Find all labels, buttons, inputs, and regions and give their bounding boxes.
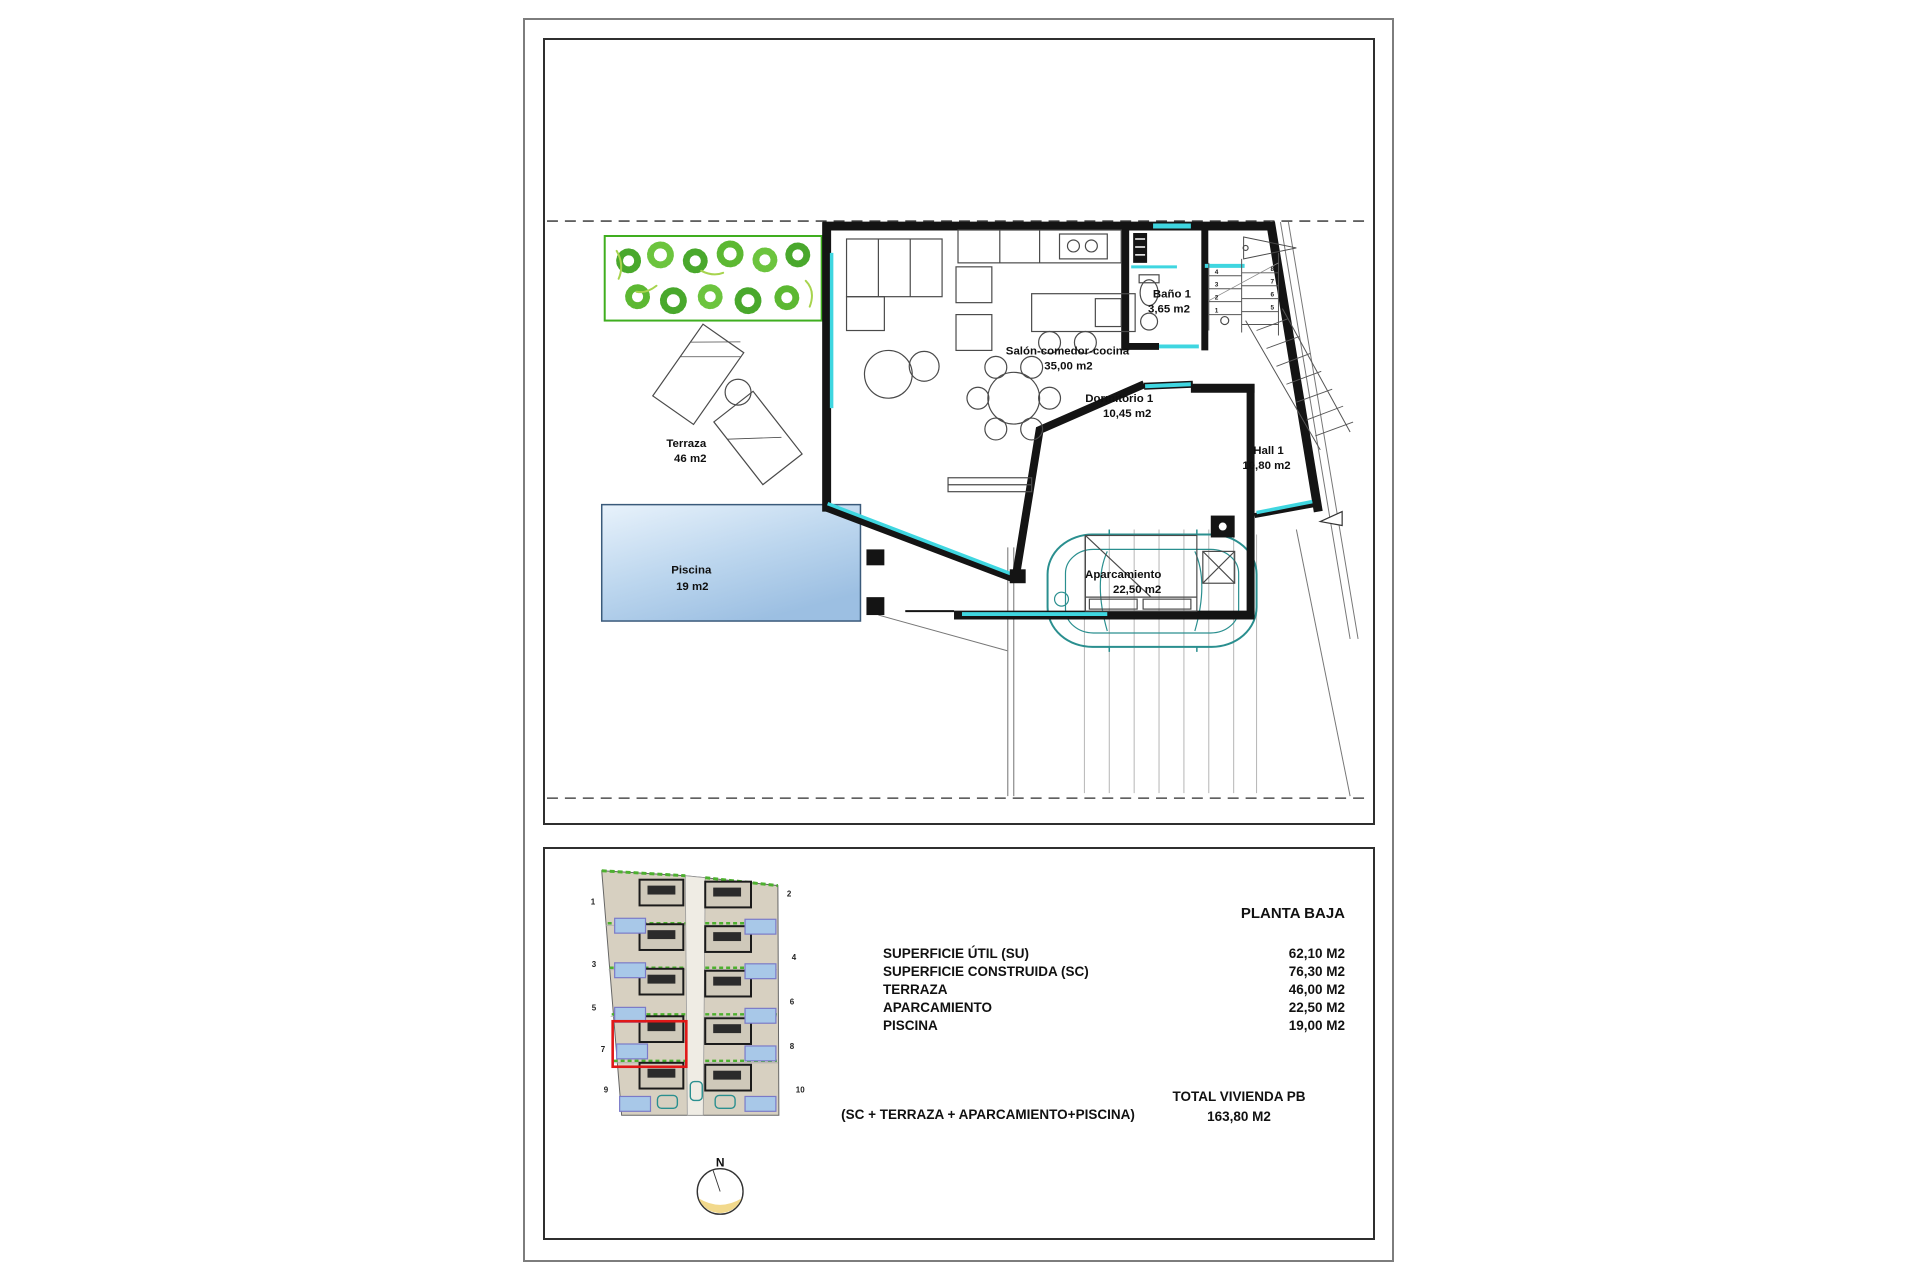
summary-row-value: 22,50 M2	[1289, 999, 1345, 1017]
summary-heading: PLANTA BAJA	[1145, 905, 1345, 922]
summary-row: PISCINA 19,00 M2	[883, 1017, 1345, 1035]
summary-panel: 1 2 3 4 5 6 7 8 9 10 N PLANTA BAJA SUPER…	[543, 847, 1375, 1240]
summary-row: TERRAZA 46,00 M2	[883, 981, 1345, 999]
summary-row-label: TERRAZA	[883, 981, 948, 999]
pool	[602, 505, 861, 621]
svg-text:9: 9	[604, 1086, 609, 1095]
svg-text:6: 6	[790, 997, 795, 1006]
summary-row: SUPERFICIE CONSTRUIDA (SC) 76,30 M2	[883, 963, 1345, 981]
summary-row: APARCAMIENTO 22,50 M2	[883, 999, 1345, 1017]
summary-row-value: 46,00 M2	[1289, 981, 1345, 999]
floorplan-panel: 4 3 2 1 8 7 6 5	[543, 38, 1375, 825]
aparcamiento-area: 22,50 m2	[1113, 584, 1161, 596]
summary-row-label: SUPERFICIE ÚTIL (SU)	[883, 945, 1029, 963]
svg-text:5: 5	[592, 1003, 597, 1012]
svg-text:10: 10	[796, 1086, 805, 1095]
north-label: N	[716, 1156, 725, 1170]
salon-area: 35,00 m2	[1044, 360, 1092, 372]
dormitorio-area: 10,45 m2	[1103, 408, 1151, 420]
svg-text:1: 1	[591, 897, 596, 906]
svg-text:3: 3	[592, 960, 597, 969]
svg-text:3: 3	[1215, 282, 1219, 289]
bano-label: Baño 1	[1153, 289, 1192, 301]
svg-text:8: 8	[1270, 266, 1274, 273]
svg-text:6: 6	[1270, 292, 1274, 299]
svg-text:4: 4	[792, 953, 797, 962]
svg-text:5: 5	[1270, 305, 1274, 312]
dormitorio-label: Dormitorio 1	[1085, 393, 1154, 405]
svg-text:1: 1	[1215, 308, 1219, 315]
terraza-label: Terraza	[666, 438, 706, 450]
entrance-arrow-icon	[1320, 512, 1342, 526]
piscina-area: 19 m2	[676, 581, 708, 593]
summary-row-value: 62,10 M2	[1289, 945, 1345, 963]
summary-row-label: PISCINA	[883, 1017, 938, 1035]
svg-text:7: 7	[1270, 279, 1274, 286]
terraza-area: 46 m2	[674, 453, 706, 465]
summary-row-value: 19,00 M2	[1289, 1017, 1345, 1035]
summary-total: TOTAL VIVIENDA PB 163,80 M2	[1119, 1087, 1359, 1127]
summary-row-label: APARCAMIENTO	[883, 999, 992, 1017]
kitchen	[958, 230, 1135, 353]
siteplan: 1 2 3 4 5 6 7 8 9 10	[591, 871, 805, 1115]
floorplan-drawing: 4 3 2 1 8 7 6 5	[545, 40, 1373, 823]
plot-boundary-lower-slant	[1296, 529, 1350, 796]
svg-text:2: 2	[1215, 295, 1219, 302]
svg-text:7: 7	[601, 1045, 606, 1054]
piscina-label: Piscina	[671, 564, 712, 576]
summary-row: SUPERFICIE ÚTIL (SU) 62,10 M2	[883, 945, 1345, 963]
svg-text:4: 4	[1215, 269, 1219, 276]
summary-row-label: SUPERFICIE CONSTRUIDA (SC)	[883, 963, 1089, 981]
floorplan-page: { "title": "VIVIENDA 7", "plan": { "terr…	[0, 0, 1920, 1280]
bedroom-furniture	[1085, 516, 1234, 612]
living-furniture	[847, 239, 1061, 492]
planter-box	[605, 236, 822, 321]
summary-formula: (SC + TERRAZA + APARCAMIENTO+PISCINA)	[818, 1107, 1158, 1122]
svg-text:8: 8	[790, 1042, 795, 1051]
north-compass: N	[697, 1156, 743, 1214]
bano-area: 3,65 m2	[1148, 304, 1190, 316]
summary-row-value: 76,30 M2	[1289, 963, 1345, 981]
plot-boundary-right-slant	[1280, 222, 1358, 639]
summary-total-label: TOTAL VIVIENDA PB	[1119, 1087, 1359, 1107]
aparcamiento-label: Aparcamiento	[1085, 569, 1161, 581]
svg-text:2: 2	[787, 890, 792, 899]
salon-label: Salón-comedor-cocina	[1006, 345, 1130, 357]
summary-total-value: 163,80 M2	[1119, 1107, 1359, 1127]
summary-table: SUPERFICIE ÚTIL (SU) 62,10 M2 SUPERFICIE…	[883, 945, 1345, 1035]
hall-area: 10,80 m2	[1242, 460, 1290, 472]
hall-label: Hall 1	[1253, 445, 1284, 457]
